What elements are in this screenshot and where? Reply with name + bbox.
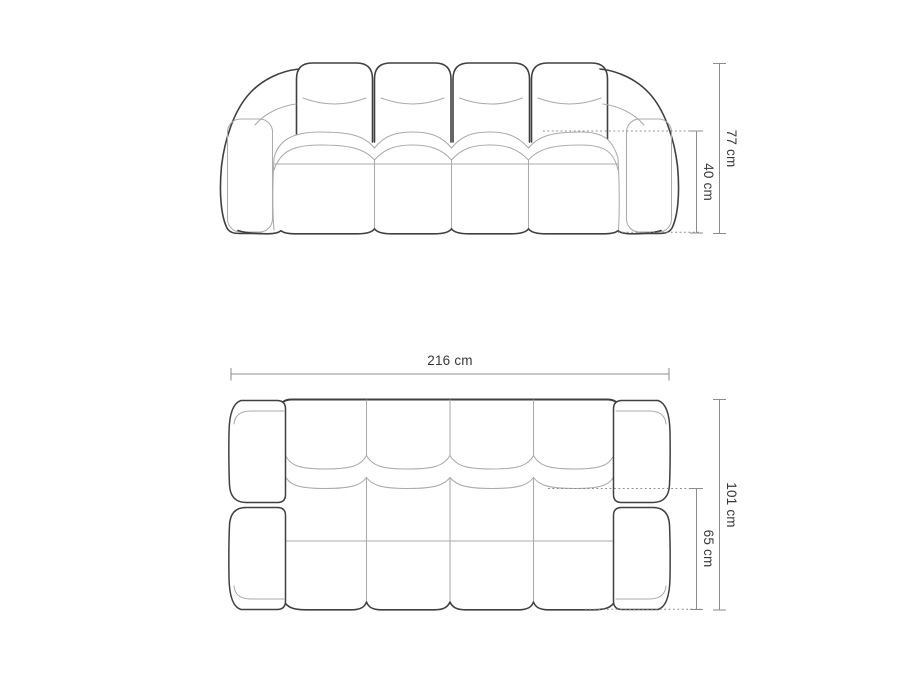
back-cushion-seam (538, 98, 601, 104)
sofa-front-view (220, 63, 678, 234)
back-cushion-3 (453, 63, 530, 142)
front-seat-height-label: 40 cm (701, 163, 716, 201)
top-seat-depth-label: 65 cm (701, 530, 716, 568)
top-total-width-label: 216 cm (427, 353, 472, 368)
front-total-height-label: 77 cm (724, 130, 739, 168)
back-cushion-seam (303, 98, 366, 104)
front-seat-cushions (273, 132, 619, 232)
top-view-right-arm (614, 401, 671, 610)
front-total-height-dimension: 77 cm (713, 64, 739, 234)
back-cushion-seam (460, 98, 523, 104)
sofa-dimension-drawing: 77 cm 40 cm 216 cm 101 cm 65 cm (0, 0, 900, 675)
back-cushion-1 (297, 63, 373, 142)
front-back-cushions (297, 63, 608, 142)
top-total-width-dimension: 216 cm (231, 353, 669, 381)
technical-drawing-page: 77 cm 40 cm 216 cm 101 cm 65 cm (0, 0, 900, 675)
right-arm-back-half (614, 401, 671, 503)
back-cushion-seam (381, 98, 444, 104)
top-view-left-arm (229, 401, 286, 610)
back-cushion-2 (375, 63, 452, 142)
sofa-top-view (229, 398, 670, 610)
top-total-depth-dimension: 101 cm (713, 400, 739, 611)
back-cushion-4 (532, 63, 608, 142)
seat-block (274, 132, 618, 232)
top-total-depth-label: 101 cm (724, 482, 739, 527)
right-arm-front-half (614, 508, 671, 610)
